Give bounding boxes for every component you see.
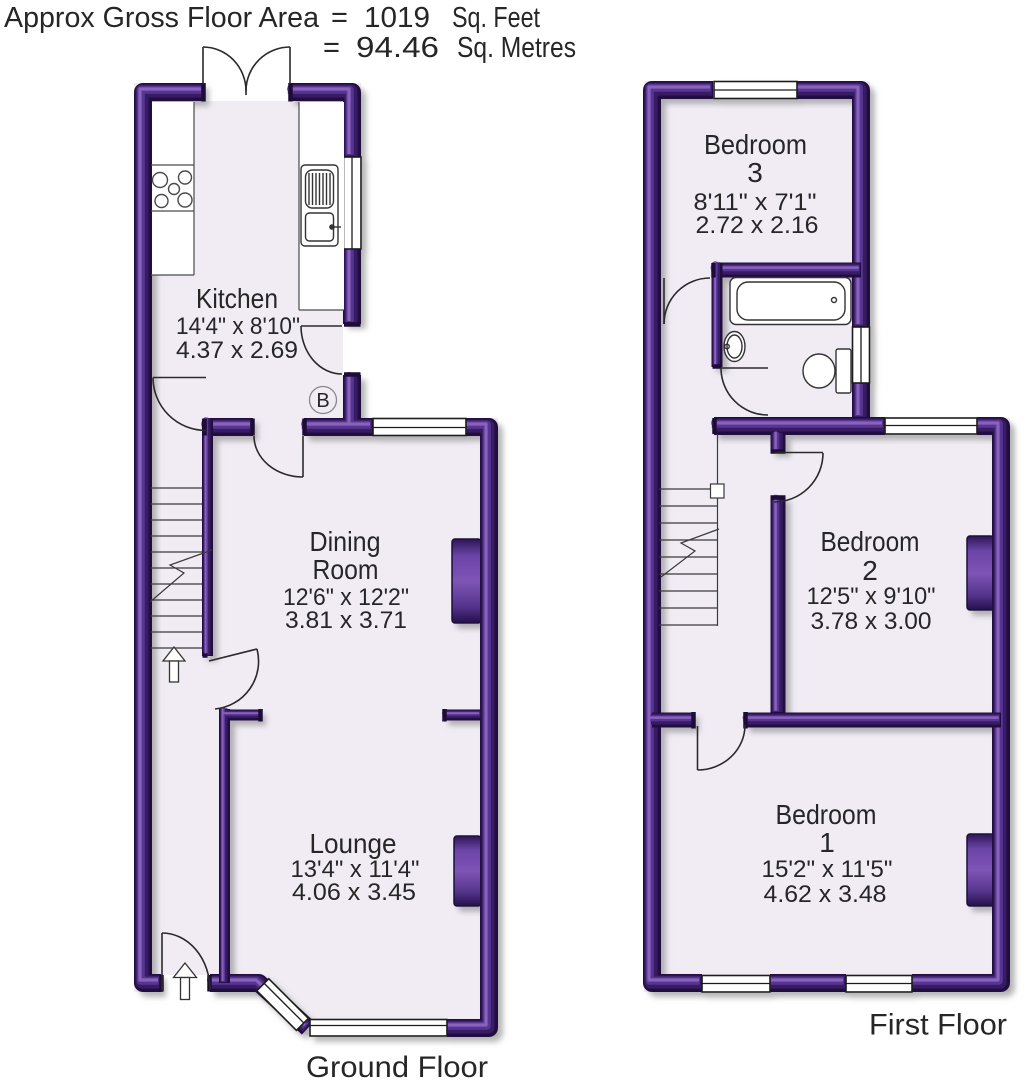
svg-text:Approx Gross Floor Area=1019Sq: Approx Gross Floor Area=1019Sq. Feet: [4, 2, 540, 34]
svg-text:14'4" x 8'10": 14'4" x 8'10": [176, 313, 300, 340]
svg-text:3.78 x 3.00: 3.78 x 3.00: [811, 608, 932, 635]
svg-text:Bedroom: Bedroom: [704, 129, 807, 160]
svg-text:Bedroom: Bedroom: [776, 799, 877, 830]
svg-text:12'5" x 9'10": 12'5" x 9'10": [807, 583, 936, 610]
svg-text:1: 1: [819, 827, 835, 858]
svg-text:Bedroom: Bedroom: [821, 526, 920, 557]
svg-text:2: 2: [862, 555, 878, 586]
svg-text:4.06 x 3.45: 4.06 x 3.45: [292, 879, 416, 906]
svg-text:Kitchen: Kitchen: [196, 283, 278, 314]
svg-text:First Floor: First Floor: [869, 1009, 1007, 1042]
svg-text:Dining: Dining: [310, 526, 381, 557]
svg-text:3.81 x 3.71: 3.81 x 3.71: [285, 607, 407, 634]
svg-text:B: B: [316, 390, 329, 412]
svg-text:2.72 x 2.16: 2.72 x 2.16: [696, 212, 819, 239]
svg-text:Lounge: Lounge: [310, 828, 397, 859]
svg-text:3: 3: [747, 157, 763, 188]
svg-text:4.37 x 2.69: 4.37 x 2.69: [176, 337, 298, 364]
svg-text:=94.46Sq. Metres: =94.46Sq. Metres: [323, 32, 576, 64]
svg-text:Ground Floor: Ground Floor: [306, 1051, 488, 1080]
svg-text:Room: Room: [313, 554, 379, 585]
svg-text:4.62 x 3.48: 4.62 x 3.48: [764, 881, 887, 908]
svg-text:15'2" x 11'5": 15'2" x 11'5": [762, 856, 893, 883]
